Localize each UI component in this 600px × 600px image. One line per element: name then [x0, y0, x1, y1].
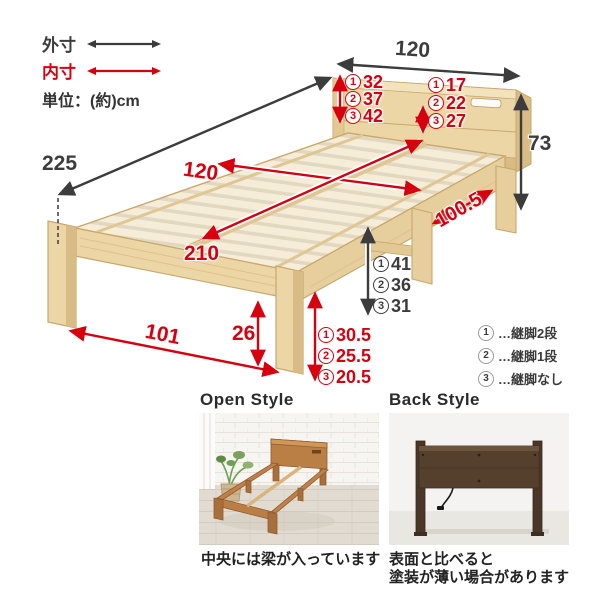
red-double-arrow-icon	[86, 65, 162, 77]
dim-under-frame-height: 26	[232, 322, 255, 346]
leg-legend-row-2: 2 …継脚1段	[478, 346, 557, 365]
dim-frame-height-opt-2: 2 25.5	[318, 347, 371, 365]
dim-clearance-opt-2: 2 36	[373, 276, 411, 294]
headboard-outlet-slot	[471, 98, 501, 108]
back-style-photo-art	[389, 413, 569, 545]
inner-dim-label: 内寸	[42, 58, 76, 83]
dim-headboard-opt-3: 3 42	[345, 107, 383, 125]
leg-legend-label: …継脚なし	[498, 369, 563, 388]
open-style-title: Open Style	[200, 390, 294, 410]
leg-legend-row-1: 1 …継脚2段	[478, 323, 557, 342]
dim-shelf-opt-1: 1 17	[428, 76, 466, 94]
head-right-leg	[496, 166, 516, 233]
dim-inner-length: 210	[184, 242, 219, 266]
leg-legend-label: …継脚2段	[498, 323, 557, 342]
open-style-photo	[199, 413, 379, 545]
outer-dim-label: 外寸	[42, 31, 76, 56]
back-style-title: Back Style	[389, 390, 480, 410]
dim-frame-height-opt-1: 1 30.5	[318, 326, 371, 344]
dim-shelf-opt-3: 3 27	[428, 112, 466, 130]
dim-top-width: 120	[394, 37, 431, 63]
unit-note: 単位：(約)cm	[42, 87, 162, 111]
back-style-caption-line2: 塗装が薄い場合があります	[389, 569, 569, 587]
product-dimension-diagram: 外寸 内寸 単位：(約)cm 120 225 73 120 210 101 26…	[0, 0, 600, 600]
back-style-caption-line1: 表面と比べると	[389, 551, 494, 569]
dim-shelf-opt-2: 2 22	[428, 94, 466, 112]
dim-clearance-opt-3: 3 31	[373, 297, 411, 315]
dim-total-height: 73	[528, 132, 551, 156]
dim-clearance-opt-1: 1 41	[373, 255, 411, 273]
leg-legend-label: …継脚1段	[498, 346, 557, 365]
open-style-caption: 中央には梁が入っています	[201, 551, 380, 569]
dim-inner-width: 120	[182, 158, 220, 187]
back-style-photo	[389, 413, 569, 545]
black-double-arrow-icon	[86, 38, 162, 50]
inner-dim-key-row: 内寸	[42, 57, 162, 84]
dim-frame-height-opt-3: 3 20.5	[318, 368, 371, 386]
open-style-photo-art	[199, 413, 379, 545]
leg-legend-row-3: 3 …継脚なし	[478, 369, 563, 388]
outer-dim-key-row: 外寸	[42, 30, 162, 57]
dimension-key: 外寸 内寸 単位：(約)cm	[42, 30, 162, 111]
dim-outer-length: 225	[42, 152, 77, 176]
middle-leg	[412, 208, 432, 284]
